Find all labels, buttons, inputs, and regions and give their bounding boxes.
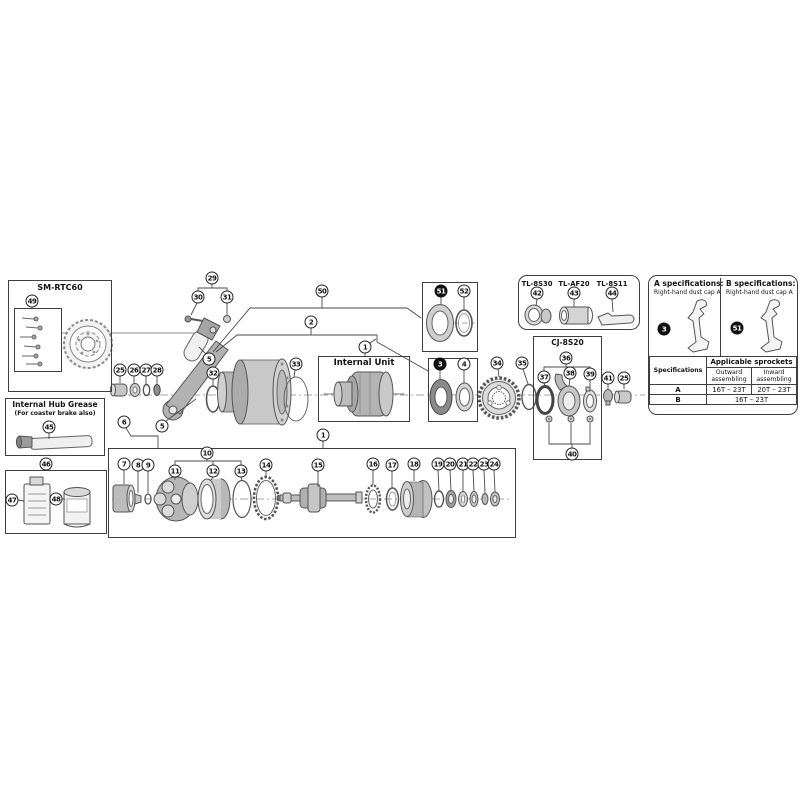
callout-4: 4 <box>458 358 471 371</box>
callout-3: 3 <box>434 358 447 371</box>
callout-39: 39 <box>584 368 597 381</box>
callout-41: 41 <box>602 372 615 385</box>
callout-37: 37 <box>538 371 551 384</box>
callout-17: 17 <box>386 459 399 472</box>
callout-30: 30 <box>192 291 205 304</box>
callout-51: 51 <box>731 322 744 335</box>
callout-18: 18 <box>408 458 421 471</box>
callout-45: 45 <box>43 421 56 434</box>
callout-24: 24 <box>488 458 501 471</box>
callout-51: 51 <box>435 285 448 298</box>
exploded-parts-diagram: SM-RTC60 Internal Hub Grease (For coaste… <box>0 0 800 800</box>
callout-1: 1 <box>359 341 372 354</box>
callout-36: 36 <box>560 352 573 365</box>
callout-31: 31 <box>221 291 234 304</box>
callout-42: 42 <box>531 287 544 300</box>
callout-1: 1 <box>317 429 330 442</box>
callout-20: 20 <box>444 458 457 471</box>
callout-28: 28 <box>151 364 164 377</box>
callout-50: 50 <box>316 285 329 298</box>
callout-46: 46 <box>40 458 53 471</box>
callout-15: 15 <box>312 459 325 472</box>
callout-25: 25 <box>114 364 127 377</box>
callout-12: 12 <box>207 465 220 478</box>
callout-5: 5 <box>156 420 169 433</box>
callout-29: 29 <box>206 272 219 285</box>
callout-40: 40 <box>566 448 579 461</box>
callout-2: 2 <box>305 316 318 329</box>
callout-44: 44 <box>606 287 619 300</box>
callout-35: 35 <box>516 357 529 370</box>
callout-34: 34 <box>491 357 504 370</box>
callout-13: 13 <box>235 465 248 478</box>
callout-3: 3 <box>658 323 671 336</box>
callout-38: 38 <box>564 367 577 380</box>
callout-25: 25 <box>618 372 631 385</box>
callout-5: 5 <box>203 353 216 366</box>
callout-43: 43 <box>568 287 581 300</box>
callout-49: 49 <box>26 295 39 308</box>
callout-33: 33 <box>290 358 303 371</box>
callout-32: 32 <box>207 367 220 380</box>
callout-16: 16 <box>367 458 380 471</box>
callout-52: 52 <box>458 285 471 298</box>
callout-7: 7 <box>118 458 131 471</box>
callout-10: 10 <box>201 447 214 460</box>
callout-layer: 4945464748293031502515242434435152526272… <box>0 0 800 800</box>
callout-14: 14 <box>260 459 273 472</box>
callout-48: 48 <box>50 493 63 506</box>
callout-6: 6 <box>118 416 131 429</box>
callout-47: 47 <box>6 494 19 507</box>
callout-11: 11 <box>169 465 182 478</box>
callout-9: 9 <box>142 459 155 472</box>
